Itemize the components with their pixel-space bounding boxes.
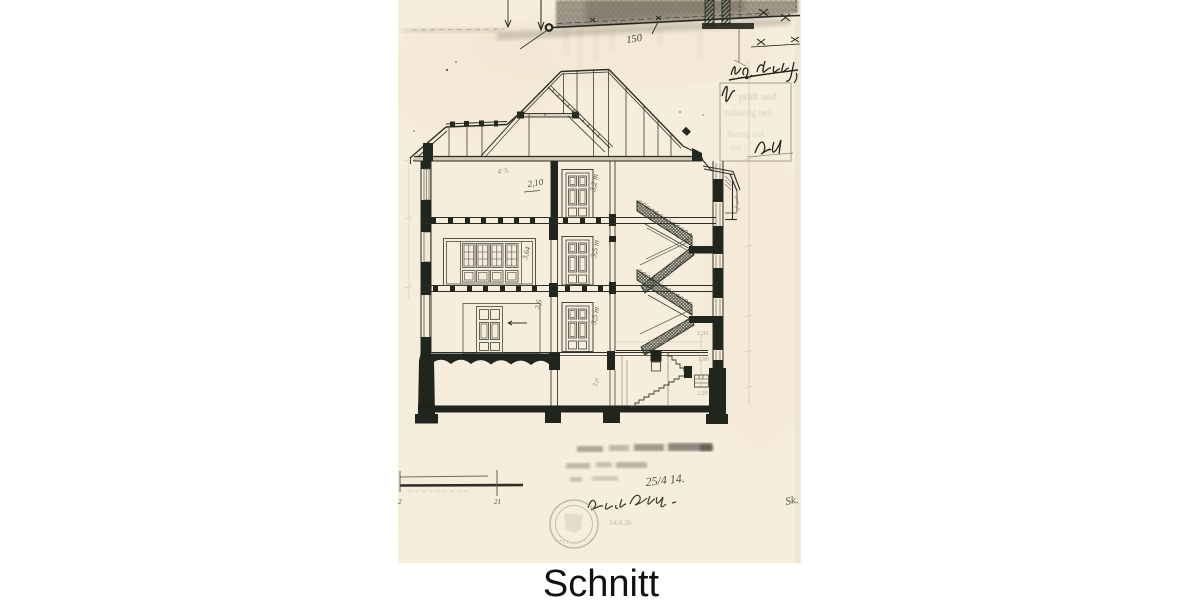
svg-text:prüft und: prüft und [739, 92, 776, 103]
svg-text:1,00: 1,00 [698, 357, 709, 363]
svg-text:2,20: 2,20 [697, 391, 708, 397]
svg-text:Bezug auf: Bezug auf [727, 129, 764, 139]
svg-text:den L.: den L. [730, 143, 750, 152]
svg-text:21: 21 [494, 498, 501, 506]
svg-text:Sk.: Sk. [784, 494, 799, 508]
svg-text:2: 2 [398, 498, 402, 506]
svg-text:14.4.26: 14.4.26 [609, 518, 632, 527]
svg-text:2,6: 2,6 [533, 299, 544, 310]
svg-text:1,35: 1,35 [697, 330, 709, 337]
